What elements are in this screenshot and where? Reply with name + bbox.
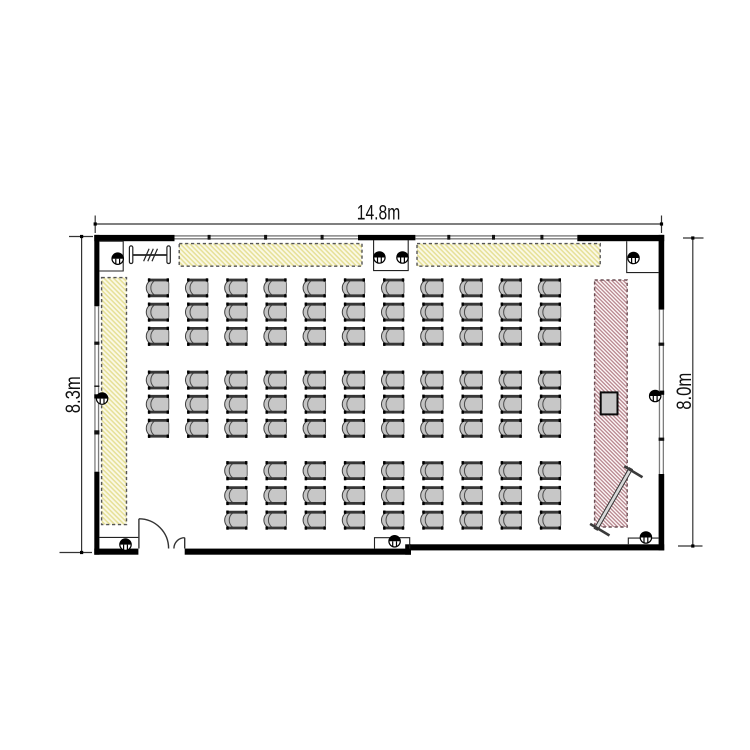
svg-text:14.8m: 14.8m [357, 201, 401, 224]
svg-text:8.0m: 8.0m [673, 373, 696, 410]
svg-text:8.3m: 8.3m [62, 376, 85, 413]
